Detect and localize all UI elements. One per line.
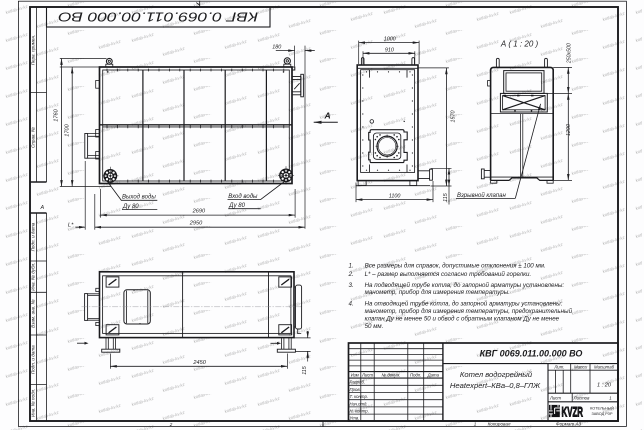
svg-text:Вход воды: Вход воды [228, 194, 258, 200]
svg-text:115: 115 [443, 192, 449, 202]
svg-text:Формат А3: Формат А3 [556, 421, 582, 426]
svg-text:КОТЕЛЬНЫЙ: КОТЕЛЬНЫЙ [590, 407, 614, 411]
svg-text:№ докум.: № докум. [382, 373, 401, 378]
svg-text:Подп. и дата: Подп. и дата [31, 222, 36, 251]
svg-text:180: 180 [272, 45, 281, 51]
svg-text:Разраб.: Разраб. [350, 380, 366, 385]
svg-text:Масса: Масса [574, 365, 587, 370]
svg-text:Лист: Лист [361, 373, 373, 378]
svg-text:ЗАВОД РЗР: ЗАВОД РЗР [591, 412, 612, 416]
svg-text:Листов: Листов [573, 396, 590, 401]
svg-text:Дата: Дата [427, 373, 440, 378]
svg-text:Пров.: Пров. [350, 387, 361, 392]
svg-text:Подп.: Подп. [410, 373, 421, 378]
svg-text:Взрывной клапан: Взрывной клапан [457, 192, 506, 199]
svg-text:2690: 2690 [192, 209, 206, 215]
svg-text:2450: 2450 [192, 360, 206, 366]
svg-text:Лист: Лист [549, 396, 561, 401]
svg-text:Н. контр.: Н. контр. [350, 409, 369, 414]
svg-text:3.: 3. [349, 282, 354, 289]
svg-text:L*: L* [68, 223, 74, 229]
svg-text:Нач.отд.: Нач.отд. [350, 401, 368, 406]
svg-text:А ( 1 : 20 ): А ( 1 : 20 ) [500, 40, 539, 49]
svg-text:Инв. № дубл.: Инв. № дубл. [31, 262, 36, 290]
svg-text:Все размеры для справок, допус: Все размеры для справок, допустимые откл… [365, 262, 546, 269]
svg-text:1700: 1700 [64, 123, 70, 136]
svg-text:Масштаб: Масштаб [594, 365, 615, 370]
svg-text:910: 910 [385, 47, 394, 53]
svg-text:клапан Ду не менее 50 и обвод: клапан Ду не менее 50 и обвод с обратным… [365, 315, 560, 322]
svg-text:манометр, прибор для измерения: манометр, прибор для измерения температу… [365, 289, 510, 296]
svg-text:50 мм.: 50 мм. [365, 323, 384, 330]
svg-text:Ду 80: Ду 80 [228, 203, 245, 209]
svg-text:1290: 1290 [566, 124, 572, 136]
svg-text:1760: 1760 [53, 108, 59, 121]
svg-text:2950: 2950 [189, 220, 203, 226]
svg-text:Котел водогрейный: Котел водогрейный [460, 370, 533, 379]
svg-text:манометр, прибор для измерения: манометр, прибор для измерения температу… [365, 308, 573, 315]
svg-text:4.: 4. [349, 301, 354, 308]
svg-text:1: 1 [474, 421, 477, 426]
svg-text:KVZR: KVZR [562, 405, 584, 420]
svg-text:Изм: Изм [351, 373, 359, 378]
svg-text:Инв. № подл.: Инв. № подл. [31, 388, 36, 417]
svg-text:1100: 1100 [389, 193, 401, 199]
svg-text:А: А [39, 205, 44, 211]
svg-text:Взам. инв. №: Взам. инв. № [31, 299, 36, 327]
svg-text:На подводящей трубе котла, до: На подводящей трубе котла, до запорной а… [365, 282, 565, 289]
svg-text:На отводящей трубе котла, до з: На отводящей трубе котла, до запорной ар… [365, 301, 563, 308]
svg-text:1570: 1570 [451, 111, 457, 123]
svg-text:Heatexpert–КВа–0,8–ГЛЖ: Heatexpert–КВа–0,8–ГЛЖ [450, 381, 541, 390]
svg-text:Перв. примен.: Перв. примен. [31, 35, 36, 66]
svg-text:2: 2 [169, 422, 173, 427]
svg-text:Копировал: Копировал [488, 421, 511, 426]
svg-text:Справ. №: Справ. № [31, 127, 36, 148]
svg-text:Ду 80: Ду 80 [122, 204, 139, 210]
svg-text:А: А [324, 111, 331, 121]
svg-text:Утв.: Утв. [350, 416, 360, 421]
svg-text:1 : 20: 1 : 20 [597, 382, 612, 388]
svg-text:Лит.: Лит. [553, 365, 564, 370]
svg-text:Т. контр.: Т. контр. [350, 394, 369, 399]
svg-text:1.: 1. [349, 262, 354, 269]
svg-text:2.: 2. [348, 271, 354, 278]
svg-text:L* – размер выполняется соглас: L* – размер выполняется согласно требова… [365, 271, 532, 278]
svg-text:Подп. и дата: Подп. и дата [31, 345, 36, 374]
svg-text:1000: 1000 [384, 37, 396, 43]
svg-text:КВГ 0069.011.00.000 ВО: КВГ 0069.011.00.000 ВО [480, 348, 583, 358]
svg-text:КВГ 0.069.011.00.000 ВО: КВГ 0.069.011.00.000 ВО [58, 10, 258, 25]
svg-text:250х500: 250х500 [566, 43, 572, 64]
svg-text:115: 115 [302, 365, 308, 375]
svg-text:Выход воды: Выход воды [122, 195, 156, 201]
